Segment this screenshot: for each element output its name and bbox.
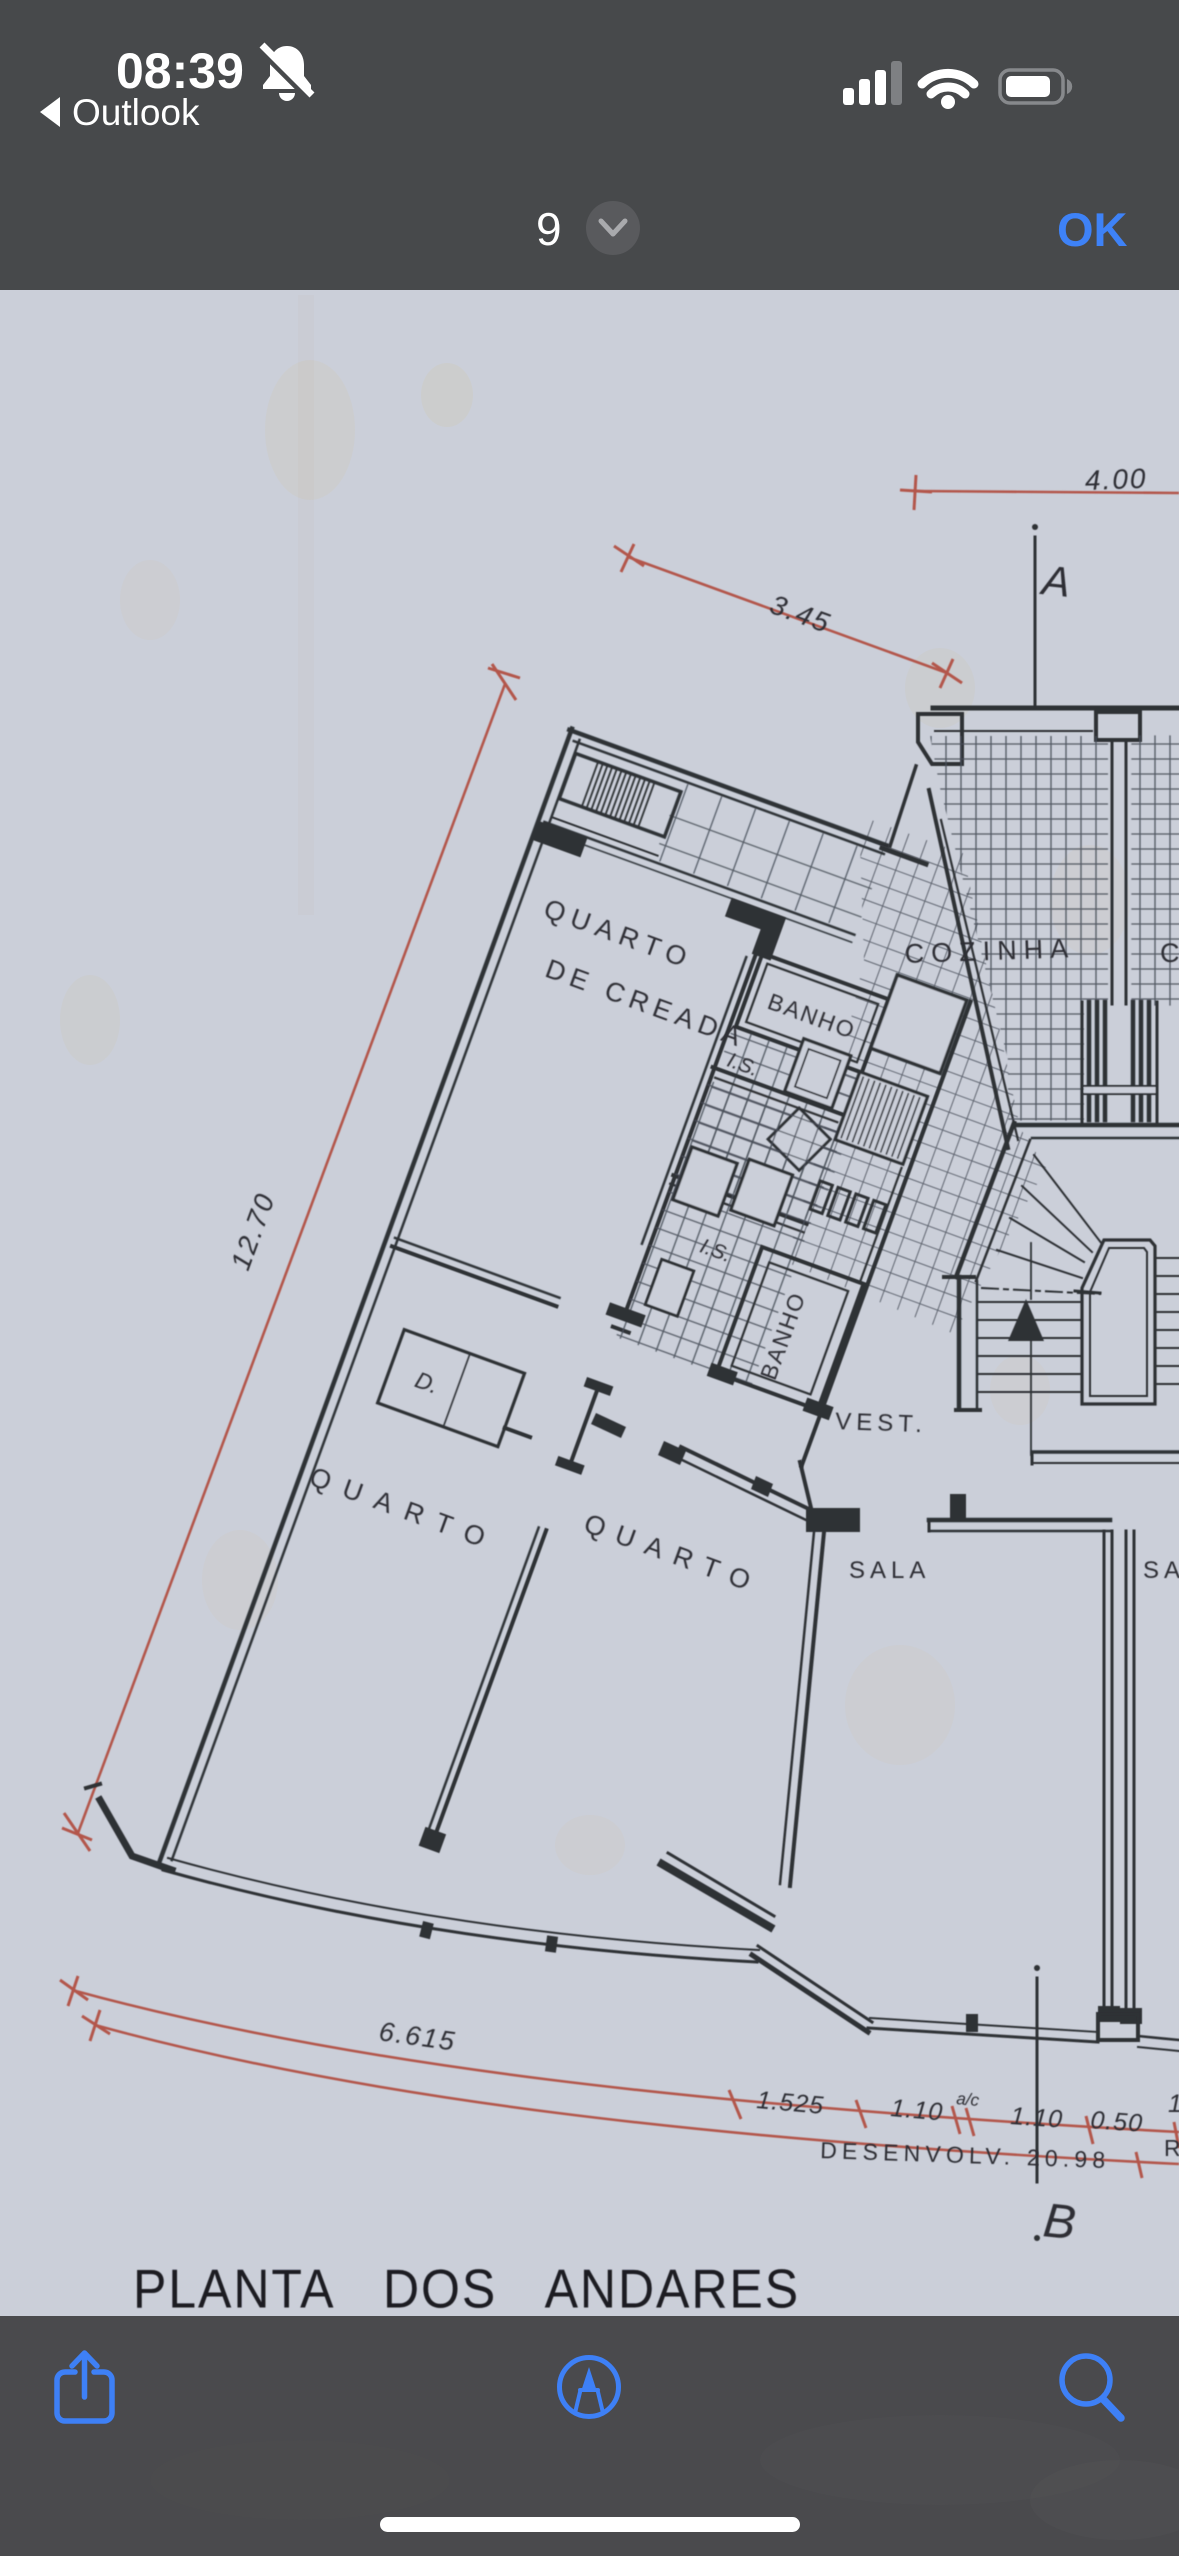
svg-text:4.00: 4.00 [1084, 463, 1148, 496]
svg-text:SAL: SAL [1143, 1557, 1179, 1584]
svg-text:PLANTA DOS ANDARES: PLANTA DOS ANDARES [133, 2258, 800, 2320]
svg-text:VEST.: VEST. [835, 1408, 928, 1438]
svg-text:1.10: 1.10 [889, 2094, 944, 2126]
svg-text:COZINHA: COZINHA [904, 933, 1075, 969]
svg-text:9: 9 [536, 203, 562, 255]
svg-text:Outlook: Outlook [72, 92, 200, 133]
svg-text:R: R [1164, 2135, 1179, 2161]
svg-text:1.525: 1.525 [755, 2086, 825, 2120]
svg-text:a/c: a/c [956, 2089, 981, 2110]
svg-text:1: 1 [1168, 2090, 1179, 2118]
svg-text:OK: OK [1057, 203, 1128, 256]
svg-text:0.50: 0.50 [1090, 2106, 1144, 2138]
svg-text:CO: CO [1160, 938, 1179, 968]
svg-text:SALA: SALA [849, 1557, 930, 1584]
svg-text:08:39: 08:39 [116, 43, 244, 99]
svg-text:1.10: 1.10 [1010, 2102, 1064, 2134]
svg-text:B: B [1041, 2194, 1078, 2250]
